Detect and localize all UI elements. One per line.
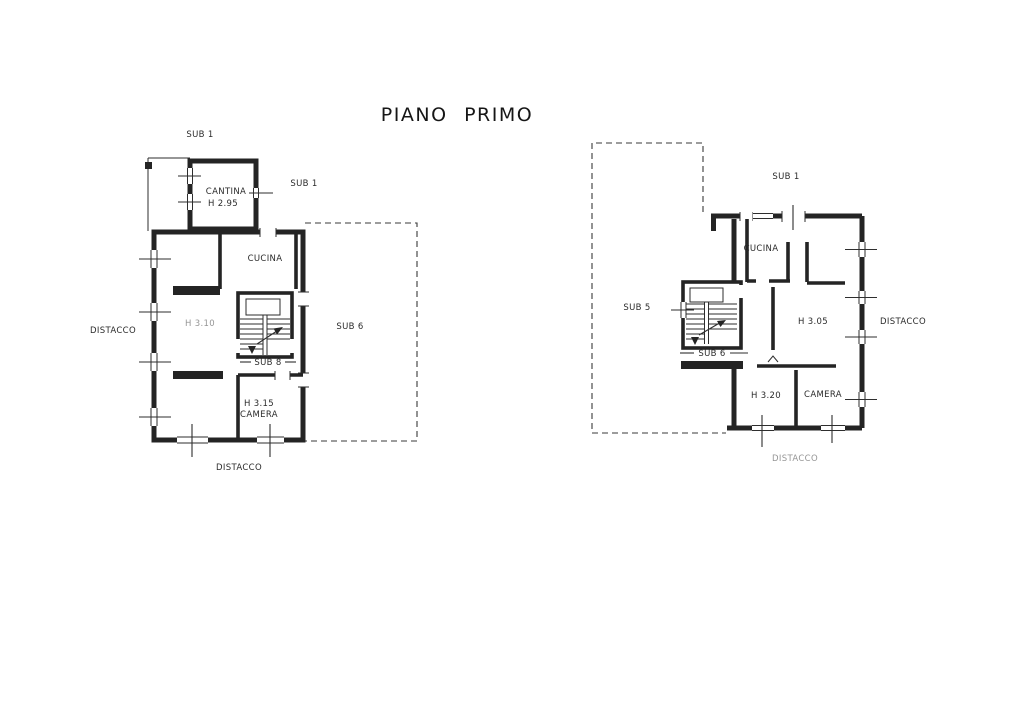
- floorplan-canvas: PIANO PRIMO: [0, 0, 1024, 723]
- left-plan: SUB 1 SUB 1 CANTINA H 2.95 CUCINA H 3.10…: [90, 130, 417, 473]
- left-plan-label-sub6: SUB 6: [336, 322, 363, 332]
- right-plan-label-distacco-bottom: DISTACCO: [772, 454, 818, 464]
- left-plan-label-distacco-bottom: DISTACCO: [216, 463, 262, 473]
- right-plan-label-distacco-right: DISTACCO: [880, 317, 926, 327]
- stair-up-arrowhead-icon: [274, 327, 284, 335]
- right-plan-label-sub6: SUB 6: [698, 349, 725, 359]
- right-plan-label-h320: H 3.20: [751, 391, 781, 401]
- right-plan: SUB 1 SUB 5 CUCINA H 3.05 SUB 6 H 3.20 C…: [592, 143, 926, 464]
- left-plan-label-sub8: SUB 8: [254, 358, 281, 368]
- right-plan-label-cucina: CUCINA: [744, 244, 779, 254]
- left-building-window-symbols: [139, 227, 309, 457]
- left-plan-label-camera-height: H 3.15: [244, 399, 274, 409]
- left-building-staircase: [234, 293, 296, 362]
- left-plan-label-cantina-height: H 2.95: [208, 199, 238, 209]
- left-plan-label-sub1-top: SUB 1: [186, 130, 213, 140]
- left-plan-label-cucina: CUCINA: [248, 254, 283, 264]
- cantina-enclosure: [145, 158, 190, 231]
- scanned-floorplan-page: PIANO PRIMO: [0, 0, 1024, 723]
- stair-down-arrow-icon: [691, 337, 699, 345]
- left-plan-label-cantina: CANTINA: [206, 187, 246, 197]
- left-plan-sub6-dashed-boundary: [305, 223, 417, 441]
- left-plan-label-sub1-right: SUB 1: [290, 179, 317, 189]
- door-swing-mark: [768, 356, 778, 362]
- page-title: PIANO PRIMO: [381, 104, 533, 126]
- left-plan-label-camera: CAMERA: [240, 410, 278, 420]
- right-plan-label-sub5: SUB 5: [623, 303, 650, 313]
- left-plan-label-main-height: H 3.10: [185, 319, 215, 329]
- right-plan-label-sub1: SUB 1: [772, 172, 799, 182]
- stair-down-arrow-icon: [248, 346, 256, 354]
- right-plan-label-main-height: H 3.05: [798, 317, 828, 327]
- right-plan-label-camera: CAMERA: [804, 390, 842, 400]
- corner-marker-square: [145, 162, 152, 169]
- left-plan-label-distacco-left: DISTACCO: [90, 326, 136, 336]
